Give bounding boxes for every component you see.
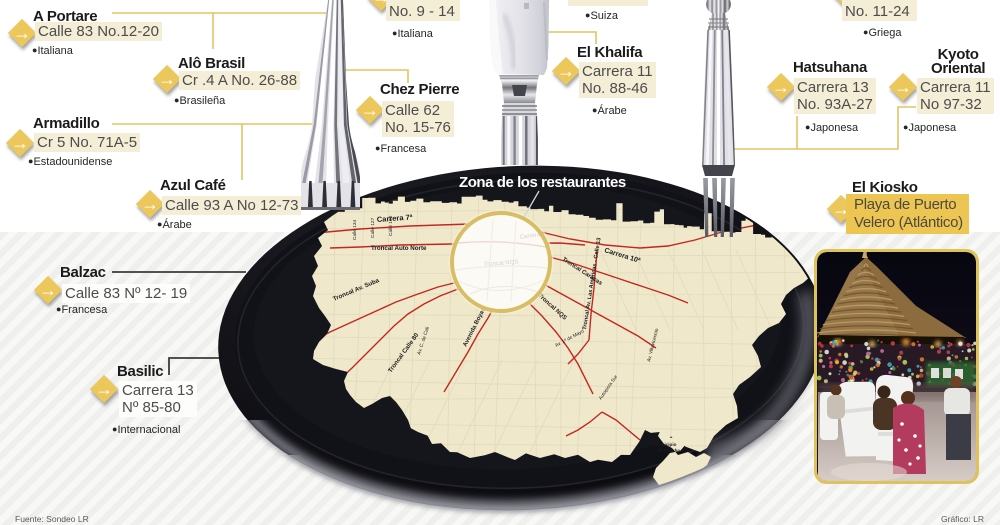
svg-text:Calle 134: Calle 134 (352, 219, 358, 240)
svg-text:Calle 127: Calle 127 (370, 217, 376, 238)
svg-text:Troncal Auto Norte: Troncal Auto Norte (371, 245, 427, 252)
svg-text:Municipio: Municipio (655, 442, 677, 447)
svg-text:Calle 100: Calle 100 (388, 215, 394, 236)
svg-text:de Soacha: de Soacha (657, 448, 680, 453)
